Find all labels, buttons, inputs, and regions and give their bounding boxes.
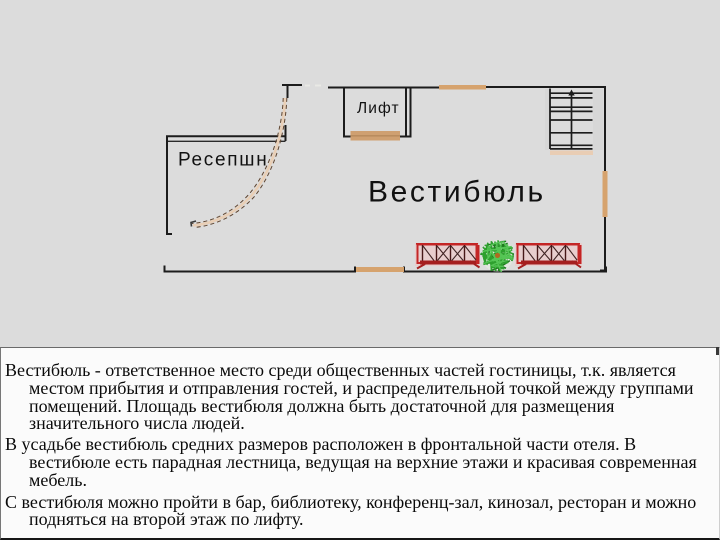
svg-text:Ресепшн: Ресепшн [178,150,268,171]
svg-text:Вестибюль: Вестибюль [368,176,546,209]
svg-text:Лифт: Лифт [357,100,400,117]
